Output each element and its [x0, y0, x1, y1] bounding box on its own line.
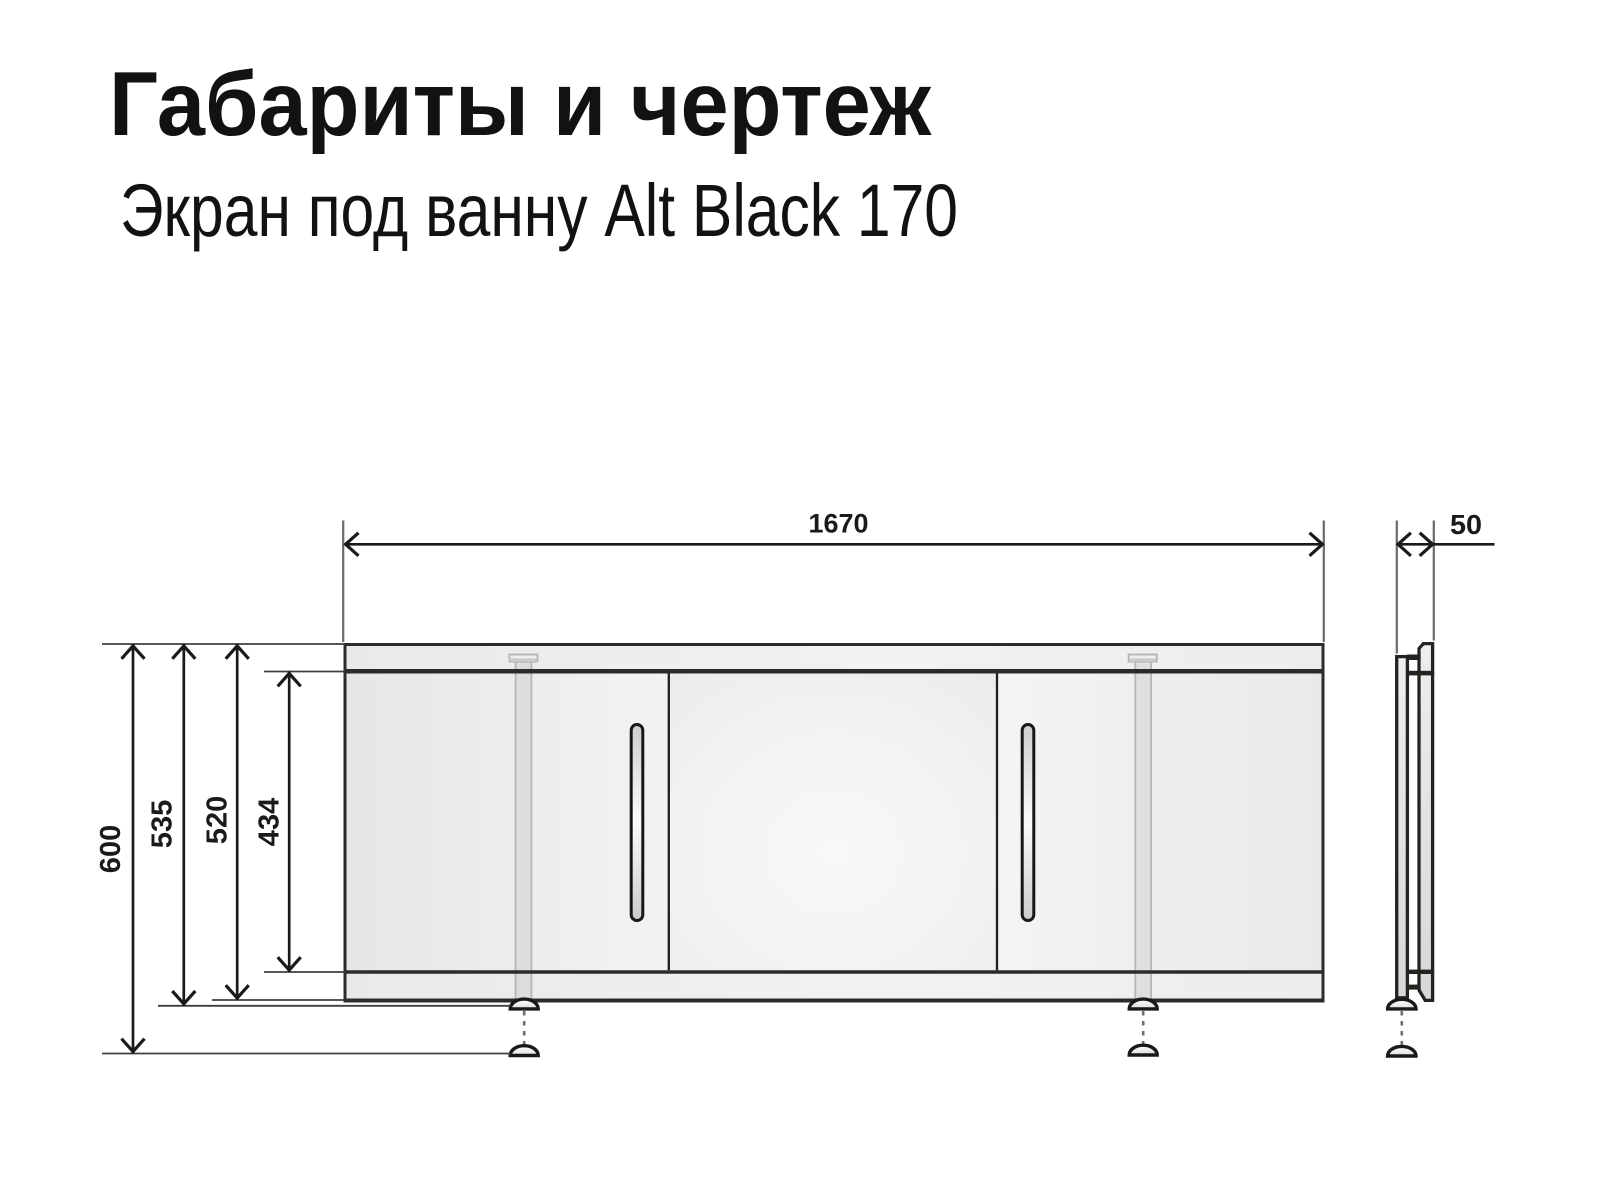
svg-text:535: 535	[147, 800, 179, 848]
svg-text:600: 600	[95, 825, 127, 873]
svg-text:Габариты и чертеж: Габариты и чертеж	[109, 54, 932, 155]
svg-text:Экран под ванну Alt Black 170: Экран под ванну Alt Black 170	[120, 169, 958, 252]
svg-text:50: 50	[1450, 509, 1482, 540]
svg-text:434: 434	[253, 798, 285, 846]
svg-text:1670: 1670	[809, 509, 869, 539]
svg-text:520: 520	[202, 796, 234, 844]
